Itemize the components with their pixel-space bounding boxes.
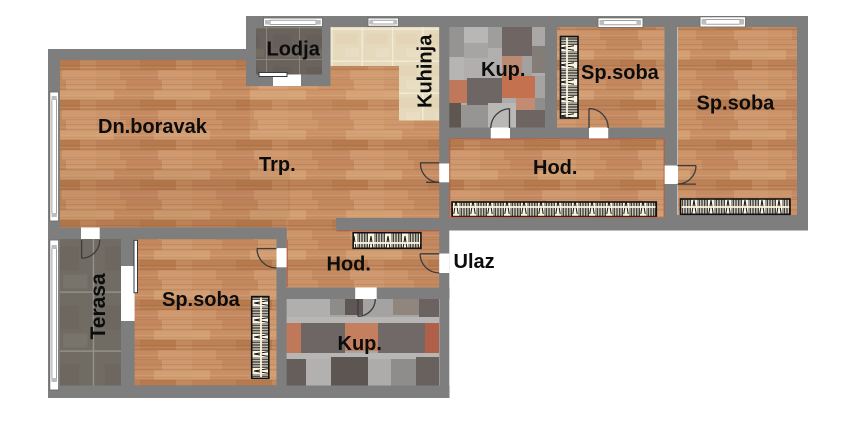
svg-text:Kup.: Kup. (338, 333, 382, 355)
svg-text:Lodja: Lodja (267, 39, 321, 61)
svg-text:Sp.soba: Sp.soba (581, 62, 660, 84)
svg-text:Hod.: Hod. (327, 254, 371, 276)
svg-text:Ulaz: Ulaz (454, 251, 495, 273)
svg-text:Kup.: Kup. (481, 59, 525, 81)
svg-text:Dn.boravak: Dn.boravak (98, 116, 208, 138)
svg-text:Kuhinja: Kuhinja (415, 34, 437, 108)
svg-text:Terasa: Terasa (87, 273, 110, 339)
svg-text:Hod.: Hod. (533, 157, 577, 179)
svg-text:Trp.: Trp. (259, 154, 296, 176)
svg-text:Sp.soba: Sp.soba (162, 289, 241, 311)
svg-text:Sp.soba: Sp.soba (697, 93, 776, 115)
